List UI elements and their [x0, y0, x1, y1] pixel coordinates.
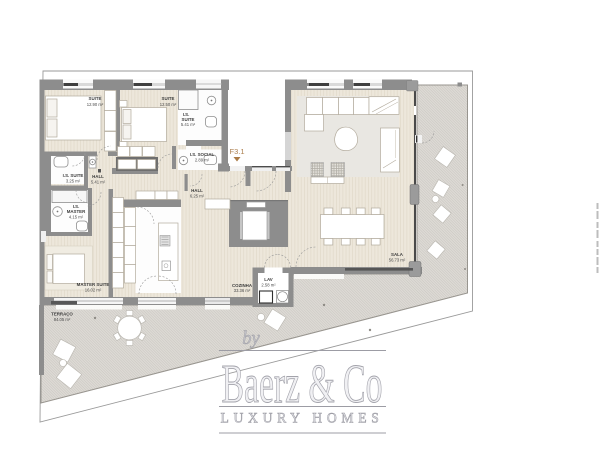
svg-text:2.89 m²: 2.89 m² — [195, 158, 210, 163]
svg-text:33.36 m²: 33.36 m² — [234, 288, 251, 293]
svg-text:SUITE: SUITE — [162, 96, 175, 101]
svg-text:LAV: LAV — [264, 277, 273, 282]
svg-text:HALL: HALL — [191, 188, 203, 193]
svg-text:16.02 m²: 16.02 m² — [85, 288, 102, 293]
svg-text:5.41 m²: 5.41 m² — [91, 180, 106, 185]
svg-text:I.S. SUITE: I.S. SUITE — [63, 173, 84, 178]
svg-text:4.15 m²: 4.15 m² — [69, 215, 84, 220]
svg-text:SUITE: SUITE — [89, 96, 102, 101]
svg-text:12.50 m²: 12.50 m² — [160, 102, 177, 107]
svg-text:F3.1: F3.1 — [229, 147, 244, 156]
svg-text:2.58 m²: 2.58 m² — [261, 283, 276, 288]
svg-text:MASTER: MASTER — [67, 209, 86, 214]
svg-text:HALL: HALL — [92, 174, 104, 179]
svg-text:I.S. SOCIAL: I.S. SOCIAL — [190, 152, 215, 157]
svg-text:56.73 m²: 56.73 m² — [389, 258, 406, 263]
svg-text:LUXURY HOMES: LUXURY HOMES — [221, 411, 384, 427]
svg-text:5.41 m²: 5.41 m² — [181, 122, 196, 127]
svg-text:84.05 m²: 84.05 m² — [54, 317, 71, 322]
svg-text:by: by — [242, 329, 260, 349]
svg-text:3.25 m²: 3.25 m² — [66, 179, 81, 184]
svg-text:TERRAÇO: TERRAÇO — [51, 312, 73, 317]
svg-text:Baerz & Co: Baerz & Co — [222, 353, 383, 414]
svg-text:SALA: SALA — [391, 252, 404, 257]
svg-text:12.90 m²: 12.90 m² — [87, 102, 104, 107]
svg-text:MASTER SUITE: MASTER SUITE — [77, 282, 110, 287]
svg-text:6.25 m²: 6.25 m² — [190, 194, 205, 199]
